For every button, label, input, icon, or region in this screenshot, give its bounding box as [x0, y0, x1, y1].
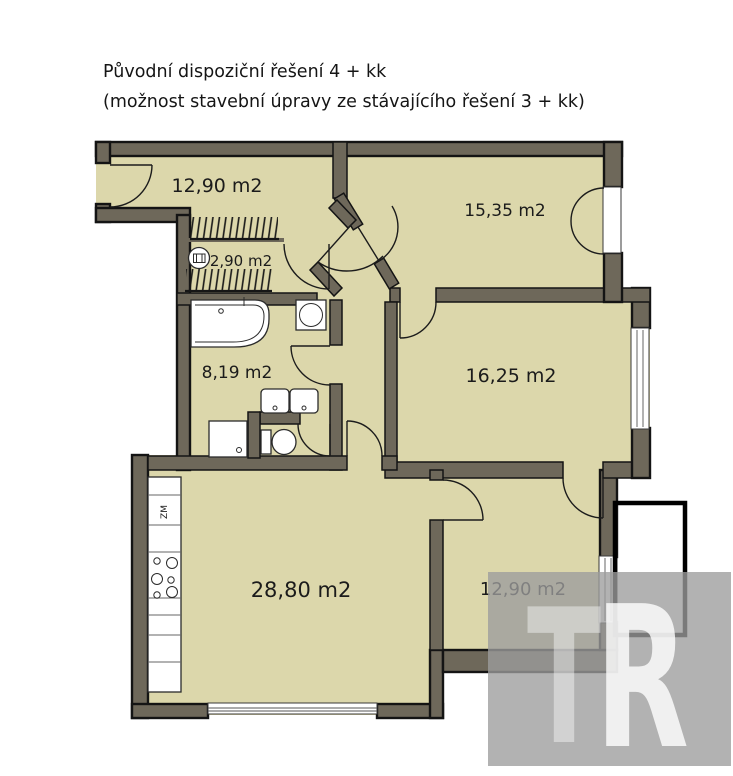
window-opening — [208, 703, 377, 714]
kitchen-counter: ZM — [148, 477, 181, 692]
toilet-bowl — [272, 430, 296, 455]
wardrobe-hatch-icon — [186, 269, 272, 290]
window-living — [208, 703, 377, 714]
floor-entrance-gap — [96, 162, 110, 206]
washing-machine-circle — [189, 248, 210, 269]
washing-machine-icon — [189, 248, 210, 269]
wall-segment — [430, 470, 443, 480]
exterior-notch-left — [0, 222, 177, 455]
toilet-tank — [261, 430, 271, 454]
window-opening — [603, 187, 621, 253]
window-bedroom2 — [631, 328, 649, 429]
wall-bedroom2-left — [385, 302, 397, 462]
room-label-living: 28,80 m2 — [251, 578, 352, 602]
floor-plan-page: Původní dispoziční řešení 4 + kk (možnos… — [0, 0, 733, 776]
wall-segment — [382, 456, 397, 470]
window-opening — [631, 328, 649, 429]
watermark-letter-r: R — [595, 565, 689, 776]
watermark-letter-t: T — [527, 569, 601, 776]
wall-wc-nook-left — [248, 412, 260, 458]
room-label-hall: 12,90 m2 — [171, 175, 262, 197]
wall-bedroom2-bottom — [385, 462, 563, 478]
outer-wall-top — [96, 142, 622, 156]
wall-wc-nook-top — [260, 412, 300, 424]
sink-right — [290, 389, 318, 413]
room-label-bedroom2: 16,25 m2 — [465, 365, 556, 387]
wall-hall-bedroom1 — [333, 142, 347, 198]
wardrobe-hatch-icon — [191, 217, 278, 238]
bathtub — [191, 300, 269, 347]
sink-left — [261, 389, 289, 413]
outer-wall-left-middle — [177, 215, 190, 470]
wall-segment — [132, 704, 208, 718]
watermark: T R — [488, 565, 731, 776]
wall-segment — [96, 142, 110, 163]
wall-segment — [604, 253, 622, 302]
room-label-pantry: 2,90 m2 — [210, 252, 272, 270]
room-label-bathroom: 8,19 m2 — [202, 363, 273, 383]
wall-segment — [430, 650, 443, 718]
washbasin-corner — [296, 300, 326, 330]
room-label-bedroom1: 15,35 m2 — [464, 201, 545, 221]
wall-living-bedroom3 — [430, 520, 443, 650]
wall-segment — [604, 142, 622, 187]
wall-segment — [632, 428, 650, 478]
wall-segment — [330, 300, 342, 345]
wall-segment — [390, 288, 400, 302]
outer-wall-living-left — [132, 455, 148, 718]
floor-plan: ZM 12,90 m2 2,90 m2 8,19 m2 15,35 m2 16,… — [0, 0, 733, 776]
kitchen-appliance-label: ZM — [160, 505, 170, 519]
